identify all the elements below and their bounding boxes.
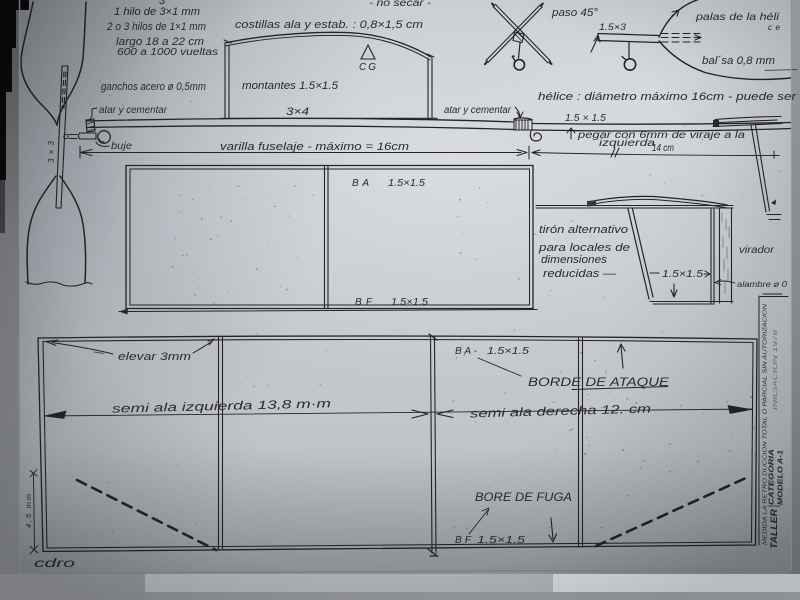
svg-text:BA: BA xyxy=(352,178,369,189)
svg-text:izquierda: izquierda xyxy=(599,137,655,149)
svg-text:1.5×1.5: 1.5×1.5 xyxy=(388,178,425,189)
svg-text:MEDIDA LA RETRO DUCCION TOTAL: MEDIDA LA RETRO DUCCION TOTAL O PARCIAL … xyxy=(763,304,769,545)
svg-text:BF: BF xyxy=(355,297,373,308)
svg-text:palas de la héli: palas de la héli xyxy=(695,11,780,23)
svg-text:CG: CG xyxy=(359,62,376,73)
svg-text:600 a 1000 vueltas: 600 a 1000 vueltas xyxy=(117,47,218,58)
svg-text:costillas ala y estab. : 0,8×1: costillas ala y estab. : 0,8×1,5 cm xyxy=(235,19,423,31)
svg-text:paso 45°: paso 45° xyxy=(551,7,599,19)
svg-text:ce: ce xyxy=(768,23,781,32)
svg-text:bal´sa 0,8 mm: bal´sa 0,8 mm xyxy=(702,55,775,67)
svg-text:montantes 1.5×1.5: montantes 1.5×1.5 xyxy=(242,80,339,92)
svg-text:ganchos acero ø 0,5mm: ganchos acero ø 0,5mm xyxy=(101,81,206,93)
svg-text:3×3: 3×3 xyxy=(47,140,56,163)
svg-text:CATEGORIA: CATEGORIA xyxy=(767,449,776,505)
svg-text:virador: virador xyxy=(739,245,775,256)
svg-text:para locales de: para locales de xyxy=(538,242,630,254)
svg-text:semi ala izquierda 13,8 m·m: semi ala izquierda 13,8 m·m xyxy=(112,396,331,415)
svg-text:dimensiones: dimensiones xyxy=(541,254,608,266)
svg-text:1.5 × 1.5: 1.5 × 1.5 xyxy=(565,113,606,124)
svg-text:1.5×1.5: 1.5×1.5 xyxy=(487,346,530,357)
svg-text:1 hilo de 3×1 mm: 1 hilo de 3×1 mm xyxy=(114,6,200,18)
svg-text:buje: buje xyxy=(111,141,132,152)
svg-text:semi ala derecha 12. cm: semi ala derecha 12. cm xyxy=(470,401,651,420)
svg-text:- no secar -: - no secar - xyxy=(369,0,432,9)
svg-text:reducidas —: reducidas — xyxy=(543,268,617,280)
svg-text:atar y cementar: atar y cementar xyxy=(99,105,168,116)
svg-text:MODELO A-1: MODELO A-1 xyxy=(778,450,785,505)
svg-text:BA-: BA- xyxy=(455,346,478,357)
svg-text:4,5 mm: 4,5 mm xyxy=(24,494,33,528)
svg-text:hélice : diámetro máximo 16cm: hélice : diámetro máximo 16cm - puede se… xyxy=(538,91,798,103)
svg-text:2 o 3 hilos de 1×1 mm: 2 o 3 hilos de 1×1 mm xyxy=(106,21,206,33)
svg-text:1.5×3: 1.5×3 xyxy=(599,22,627,33)
svg-text:varilla fuselaje - máximo = 16: varilla fuselaje - máximo = 16cm xyxy=(220,141,409,153)
svg-text:1.5×1.5: 1.5×1.5 xyxy=(662,269,704,280)
svg-text:BORE DE FUGA: BORE DE FUGA xyxy=(475,492,572,504)
svg-text:alambre ø 0: alambre ø 0 xyxy=(737,280,788,289)
svg-text:atar y cementar: atar y cementar xyxy=(444,105,512,116)
svg-text:TALLER: TALLER xyxy=(769,508,779,549)
svg-text:1.5×1.5: 1.5×1.5 xyxy=(477,535,526,546)
svg-text:14 cm: 14 cm xyxy=(652,143,674,154)
svg-text:3×4: 3×4 xyxy=(286,106,309,118)
svg-text:INICIACION 1978: INICIACION 1978 xyxy=(773,329,779,410)
svg-text:elevar 3mm: elevar 3mm xyxy=(118,351,191,363)
svg-text:tirón alternativo: tirón alternativo xyxy=(539,224,628,236)
svg-text:cdro: cdro xyxy=(34,556,76,570)
